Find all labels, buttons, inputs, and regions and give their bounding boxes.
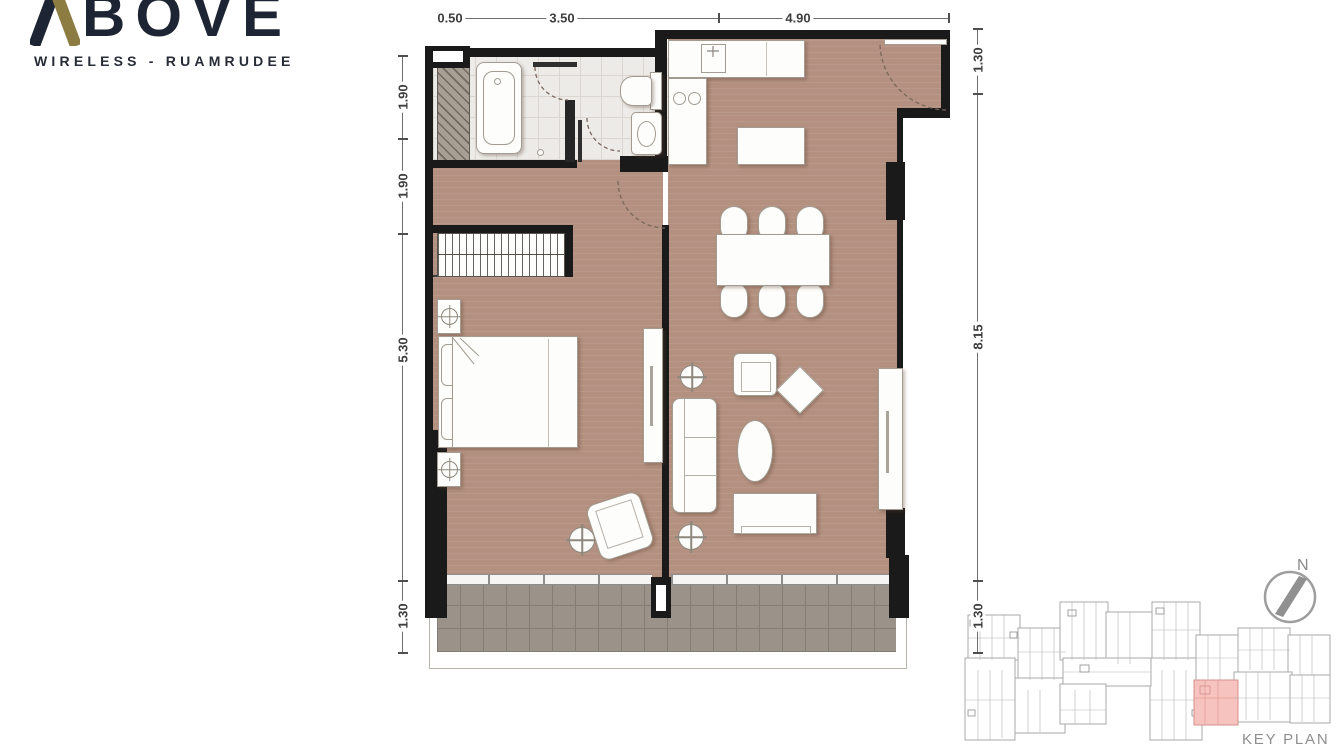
wall-balcony-pier-center — [651, 577, 671, 618]
hob-burner-1 — [673, 92, 686, 105]
wall-hall-block — [620, 156, 668, 172]
hob-burner-2 — [688, 92, 701, 105]
dim-left-1: 1.90 — [396, 81, 411, 112]
keyplan: N — [960, 540, 1342, 754]
wall-bedroom-living-divider — [662, 225, 669, 578]
wall-balcony-pier-right — [889, 555, 909, 618]
coffee-table-oval — [737, 420, 773, 482]
wall-bath-partition — [565, 100, 575, 162]
wall-left-upper — [425, 48, 433, 438]
wall-top — [660, 30, 950, 39]
brand-tagline: WIRELESS - RUAMRUDEE — [34, 53, 295, 69]
dim-right-3: 1.30 — [971, 600, 986, 631]
dim-left-4: 1.30 — [396, 600, 411, 631]
tv-console-bedroom — [643, 328, 663, 463]
crosshair-marker-icon — [680, 365, 704, 389]
keyplan-label: KEY PLAN — [1242, 731, 1330, 748]
dim-top-2: 3.50 — [546, 11, 577, 26]
brand-chevron-icon — [30, 0, 80, 46]
dining-chair — [758, 282, 786, 318]
kitchen-counter-seam — [766, 42, 767, 76]
wall-bath-bottom — [433, 160, 577, 168]
sliding-door-left — [433, 574, 652, 585]
bathroom-sink-basin — [637, 121, 656, 147]
wardrobe — [437, 233, 565, 277]
side-table-round — [569, 527, 595, 553]
dim-left-2: 1.90 — [396, 170, 411, 201]
floorplan-page: BOVE WIRELESS - RUAMRUDEE 0.50 3.50 4.90… — [0, 0, 1342, 754]
shower-door-leaf — [533, 62, 577, 67]
compass-north-label: N — [1297, 557, 1309, 574]
kitchen-island — [737, 127, 805, 165]
toilet-bowl — [620, 76, 652, 106]
armchair-living — [733, 353, 777, 396]
dim-top-1: 0.50 — [434, 11, 465, 26]
tv-bench — [733, 493, 817, 534]
dining-chair — [796, 282, 824, 318]
service-shaft — [437, 66, 470, 164]
dim-top-3: 4.90 — [782, 11, 813, 26]
compass-icon: N — [1265, 557, 1315, 622]
sofa — [672, 398, 717, 513]
bath-door-leaf — [578, 120, 582, 162]
keyplan-building-left — [965, 602, 1202, 740]
entrance-door-leaf — [884, 39, 947, 45]
floor-drain — [537, 149, 544, 156]
wall-right-pillar-1 — [886, 162, 905, 220]
dim-right-2: 8.15 — [971, 321, 986, 352]
tv-console-living — [878, 368, 903, 510]
wall-entry-step — [897, 108, 950, 118]
keyplan-highlighted-unit — [1194, 680, 1238, 725]
wall-wardrobe-top — [433, 225, 573, 233]
dim-left-3: 5.30 — [396, 334, 411, 365]
dining-table — [716, 234, 830, 286]
nightstand-top — [437, 299, 461, 334]
kitchen-counter-top — [668, 40, 805, 78]
crosshair-marker-icon — [678, 524, 704, 550]
nightstand-bottom — [437, 452, 461, 487]
bathtub-drain — [494, 78, 501, 85]
sliding-door-right — [671, 574, 890, 585]
dim-right-1: 1.30 — [971, 44, 986, 75]
brand-name: BOVE — [82, 0, 292, 46]
brand-logo: BOVE WIRELESS - RUAMRUDEE — [30, 0, 295, 69]
kitchen-sink — [701, 44, 726, 73]
wall-right-pillar-2 — [886, 508, 905, 558]
kitchen-counter-side — [668, 78, 707, 165]
dining-chair — [720, 282, 748, 318]
bed — [452, 336, 578, 448]
